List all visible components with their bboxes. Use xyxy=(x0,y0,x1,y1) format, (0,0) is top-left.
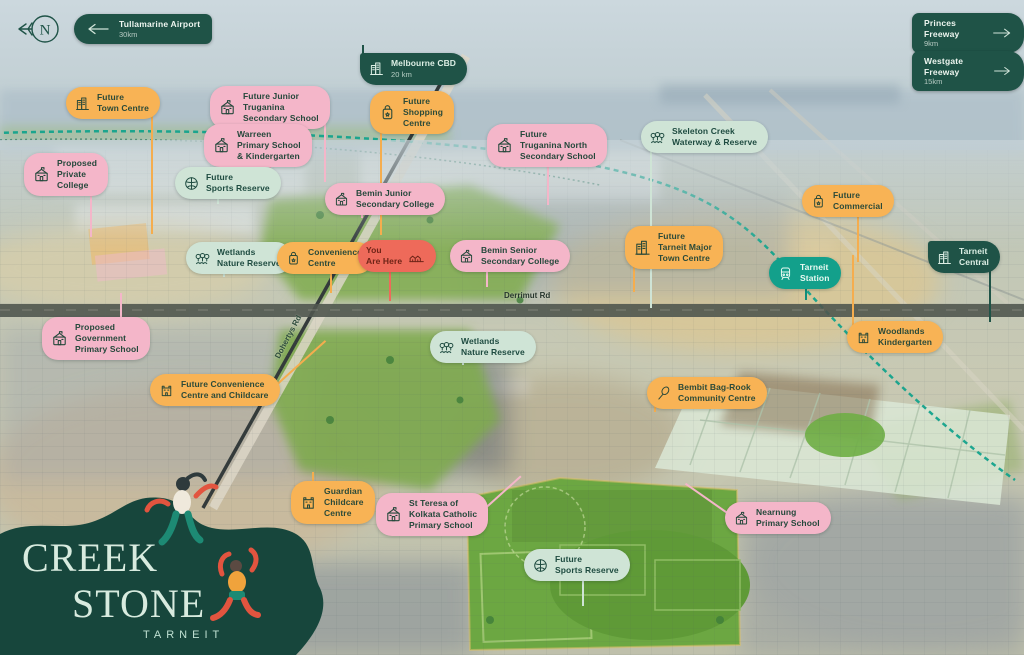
school-icon xyxy=(218,98,237,117)
map-label-future-truganina-north-secondary-school[interactable]: FutureTruganina NorthSecondary School xyxy=(487,124,607,167)
map-label-future-town-centre[interactable]: FutureTown Centre xyxy=(66,87,160,119)
arrow-right-icon xyxy=(992,27,1012,39)
map-label-proposed-private-college[interactable]: ProposedPrivateCollege xyxy=(24,153,108,196)
label-text: ProposedGovernmentPrimary School xyxy=(75,322,139,355)
sign-tullamarine-airport[interactable]: Tullamarine Airport30km xyxy=(74,14,212,44)
label-text: Future ConvenienceCentre and Childcare xyxy=(181,379,269,401)
sign-princes-freeway[interactable]: Princes Freeway9km xyxy=(912,13,1024,53)
label-text: WarreenPrimary School& Kindergarten xyxy=(237,129,301,162)
buildings-icon xyxy=(936,249,953,266)
map-label-future-junior-truganina-secondary-school[interactable]: Future JuniorTruganinaSecondary School xyxy=(210,86,330,129)
logo-text-tarneit: TARNEIT xyxy=(143,629,224,641)
trees-icon xyxy=(194,250,211,267)
school-icon xyxy=(333,191,350,208)
logo-text-creek: CREEK xyxy=(22,538,158,578)
bag-icon xyxy=(378,103,397,122)
map-label-skeleton-creek-waterway-reserve[interactable]: Skeleton CreekWaterway & Reserve xyxy=(641,121,768,153)
sign-westgate-freeway[interactable]: Westgate Freeway15km xyxy=(912,51,1024,91)
label-text: TarneitCentral xyxy=(959,246,989,268)
label-text: TarneitStation xyxy=(800,262,830,284)
map-label-future-sports-reserve-north[interactable]: FutureSports Reserve xyxy=(175,167,281,199)
sign-label: Tullamarine Airport xyxy=(119,19,200,30)
map-label-woodlands-kindergarten[interactable]: WoodlandsKindergarten xyxy=(847,321,943,353)
map-label-warreen-primary-school-kindergarten[interactable]: WarreenPrimary School& Kindergarten xyxy=(204,124,312,167)
map-label-future-convenience-centre-and-childcare[interactable]: Future ConvenienceCentre and Childcare xyxy=(150,374,280,406)
trees-icon xyxy=(438,339,455,356)
label-text: FutureSports Reserve xyxy=(206,172,270,194)
school-icon xyxy=(495,136,514,155)
map-label-bembit-bag-rook-community-centre[interactable]: Bembit Bag-RookCommunity Centre xyxy=(647,377,767,409)
school-icon xyxy=(32,165,51,184)
label-text: Future JuniorTruganinaSecondary School xyxy=(243,91,319,124)
bag-icon xyxy=(285,250,302,267)
buildings-icon xyxy=(74,95,91,112)
buildings-icon xyxy=(368,60,385,77)
label-text: FutureShoppingCentre xyxy=(403,96,443,129)
castle-icon xyxy=(855,329,872,346)
label-text: WetlandsNature Reserve xyxy=(217,247,281,269)
label-text: Bemin JuniorSecondary College xyxy=(356,188,434,210)
label-text: NearnungPrimary School xyxy=(756,507,820,529)
label-text: Melbourne CBD20 km xyxy=(391,58,456,80)
buildings-icon xyxy=(633,238,652,257)
arrow-right-icon xyxy=(993,65,1012,77)
logo-text-stone: STONE xyxy=(72,584,205,624)
map-label-nearnung-primary-school[interactable]: NearnungPrimary School xyxy=(725,502,831,534)
label-text: WoodlandsKindergarten xyxy=(878,326,932,348)
map-label-you-are-here[interactable]: YouAre Here xyxy=(358,240,436,272)
sign-distance: 15km xyxy=(924,77,984,86)
map-label-future-commercial[interactable]: FutureCommercial xyxy=(802,185,894,217)
label-text: FutureTruganina NorthSecondary School xyxy=(520,129,596,162)
map-label-bemin-senior-secondary-college[interactable]: Bemin SeniorSecondary College xyxy=(450,240,570,272)
label-text: FutureSports Reserve xyxy=(555,554,619,576)
sign-label: Princes Freeway xyxy=(924,18,983,39)
leader-line-future-shopping-centre xyxy=(380,117,382,235)
houses-icon xyxy=(408,248,425,265)
sign-label: Westgate Freeway xyxy=(924,56,984,77)
school-icon xyxy=(458,248,475,265)
compass-north-icon: N xyxy=(14,8,66,55)
label-text: ProposedPrivateCollege xyxy=(57,158,97,191)
brand-logo: CREEK STONE TARNEIT xyxy=(0,462,360,655)
label-text: WetlandsNature Reserve xyxy=(461,336,525,358)
label-text: FutureCommercial xyxy=(833,190,883,212)
map-label-melbourne-cbd[interactable]: Melbourne CBD20 km xyxy=(360,53,467,85)
basketball-icon xyxy=(183,175,200,192)
label-text: YouAre Here xyxy=(366,245,402,267)
map-label-bemin-junior-secondary-college[interactable]: Bemin JuniorSecondary College xyxy=(325,183,445,215)
castle-icon xyxy=(158,382,175,399)
map-label-future-sports-reserve-south[interactable]: FutureSports Reserve xyxy=(524,549,630,581)
school-icon xyxy=(733,510,750,527)
school-icon xyxy=(384,505,403,524)
map-label-wetlands-nature-reserve-south[interactable]: WetlandsNature Reserve xyxy=(430,331,536,363)
map-label-future-shopping-centre[interactable]: FutureShoppingCentre xyxy=(370,91,454,134)
school-icon xyxy=(50,329,69,348)
label-text: St Teresa ofKolkata CatholicPrimary Scho… xyxy=(409,498,477,531)
school-icon xyxy=(212,136,231,155)
arrow-left-icon xyxy=(86,23,110,35)
map-label-st-teresa-of-kolkata-catholic-primary-school[interactable]: St Teresa ofKolkata CatholicPrimary Scho… xyxy=(376,493,488,536)
label-text: Skeleton CreekWaterway & Reserve xyxy=(672,126,757,148)
bag-icon xyxy=(810,193,827,210)
map-label-wetlands-nature-reserve-north[interactable]: WetlandsNature Reserve xyxy=(186,242,292,274)
label-text: FutureTarneit MajorTown Centre xyxy=(658,231,712,264)
label-text: Bembit Bag-RookCommunity Centre xyxy=(678,382,756,404)
label-text: ConvenienceCentre xyxy=(308,247,362,269)
train-icon xyxy=(777,265,794,282)
leader-line-skeleton-creek-waterway-reserve xyxy=(650,140,652,308)
trees-icon xyxy=(649,129,666,146)
basketball-icon xyxy=(532,557,549,574)
masterplan-map: N Tullamarine Airport30kmPrinces Freeway… xyxy=(0,0,1024,655)
leader-line-future-town-centre xyxy=(151,106,153,234)
label-text: FutureTown Centre xyxy=(97,92,149,114)
map-label-tarneit-station[interactable]: TarneitStation xyxy=(769,257,841,289)
leader-line-woodlands-kindergarten xyxy=(852,255,854,327)
map-label-tarneit-central[interactable]: TarneitCentral xyxy=(928,241,1000,273)
svg-text:N: N xyxy=(40,23,51,39)
label-distance: 20 km xyxy=(391,70,456,80)
tennis-icon xyxy=(655,385,672,402)
map-label-proposed-government-primary-school[interactable]: ProposedGovernmentPrimary School xyxy=(42,317,150,360)
label-text: Bemin SeniorSecondary College xyxy=(481,245,559,267)
sign-distance: 30km xyxy=(119,30,200,39)
sign-distance: 9km xyxy=(924,39,983,48)
map-label-future-tarneit-major-town-centre[interactable]: FutureTarneit MajorTown Centre xyxy=(625,226,723,269)
road-label-derrimut: Derrimut Rd xyxy=(504,291,550,300)
